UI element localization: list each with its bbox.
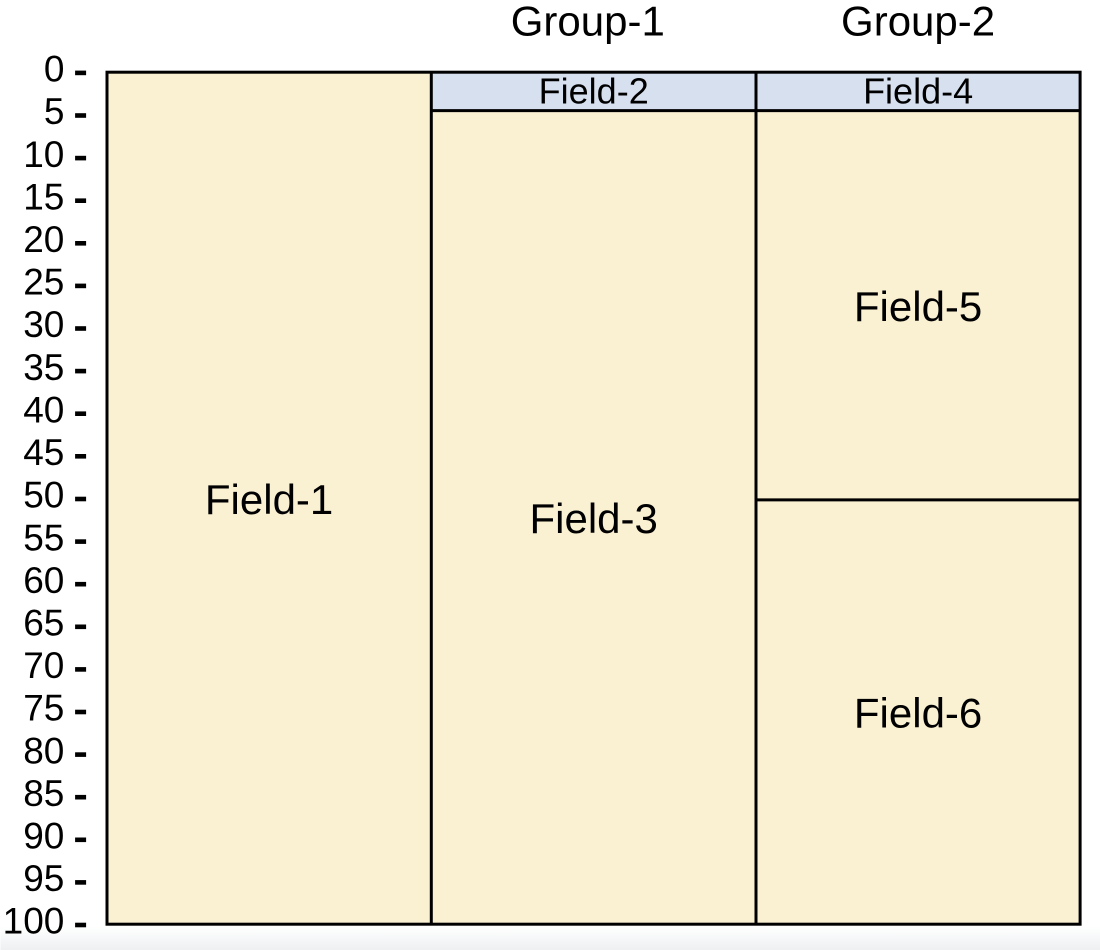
svg-text:80: 80 bbox=[23, 730, 64, 771]
svg-text:Field-6: Field-6 bbox=[854, 690, 982, 737]
svg-text:Field-5: Field-5 bbox=[854, 283, 982, 330]
svg-text:40: 40 bbox=[23, 389, 64, 430]
svg-text:Group-2: Group-2 bbox=[841, 0, 995, 45]
svg-text:Field-4: Field-4 bbox=[863, 71, 973, 112]
svg-text:10: 10 bbox=[23, 134, 64, 175]
svg-text:0: 0 bbox=[44, 49, 65, 90]
svg-text:70: 70 bbox=[23, 645, 64, 686]
svg-text:85: 85 bbox=[23, 773, 64, 814]
svg-text:5: 5 bbox=[44, 91, 65, 132]
svg-text:45: 45 bbox=[23, 432, 64, 473]
svg-text:100: 100 bbox=[3, 901, 65, 942]
svg-text:15: 15 bbox=[23, 176, 64, 217]
svg-text:Group-1: Group-1 bbox=[511, 0, 665, 45]
svg-text:65: 65 bbox=[23, 603, 64, 644]
svg-text:Field-2: Field-2 bbox=[539, 71, 649, 112]
svg-text:Field-1: Field-1 bbox=[205, 476, 333, 523]
svg-text:55: 55 bbox=[23, 517, 64, 558]
svg-text:35: 35 bbox=[23, 347, 64, 388]
svg-text:20: 20 bbox=[23, 219, 64, 260]
svg-text:75: 75 bbox=[23, 688, 64, 729]
svg-text:50: 50 bbox=[23, 475, 64, 516]
svg-text:90: 90 bbox=[23, 816, 64, 857]
svg-text:Field-3: Field-3 bbox=[530, 495, 658, 542]
svg-text:25: 25 bbox=[23, 262, 64, 303]
svg-text:95: 95 bbox=[23, 858, 64, 899]
svg-text:30: 30 bbox=[23, 304, 64, 345]
svg-text:60: 60 bbox=[23, 560, 64, 601]
